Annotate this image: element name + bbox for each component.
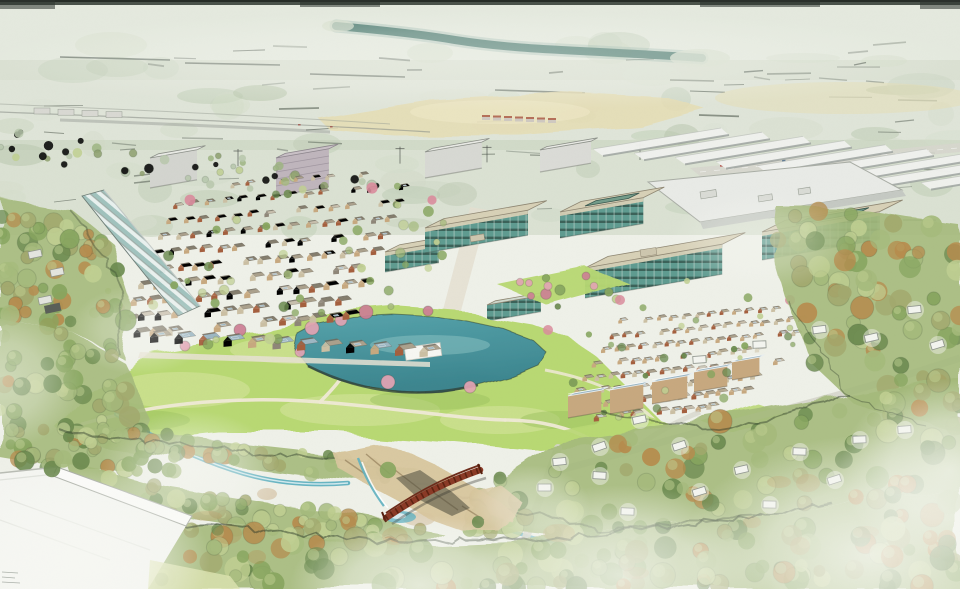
master-plan-rendering: Aerial watercolor architectural renderin…	[0, 0, 960, 589]
paper-frame	[0, 0, 960, 589]
rendering-canvas: Aerial watercolor architectural renderin…	[0, 0, 960, 589]
